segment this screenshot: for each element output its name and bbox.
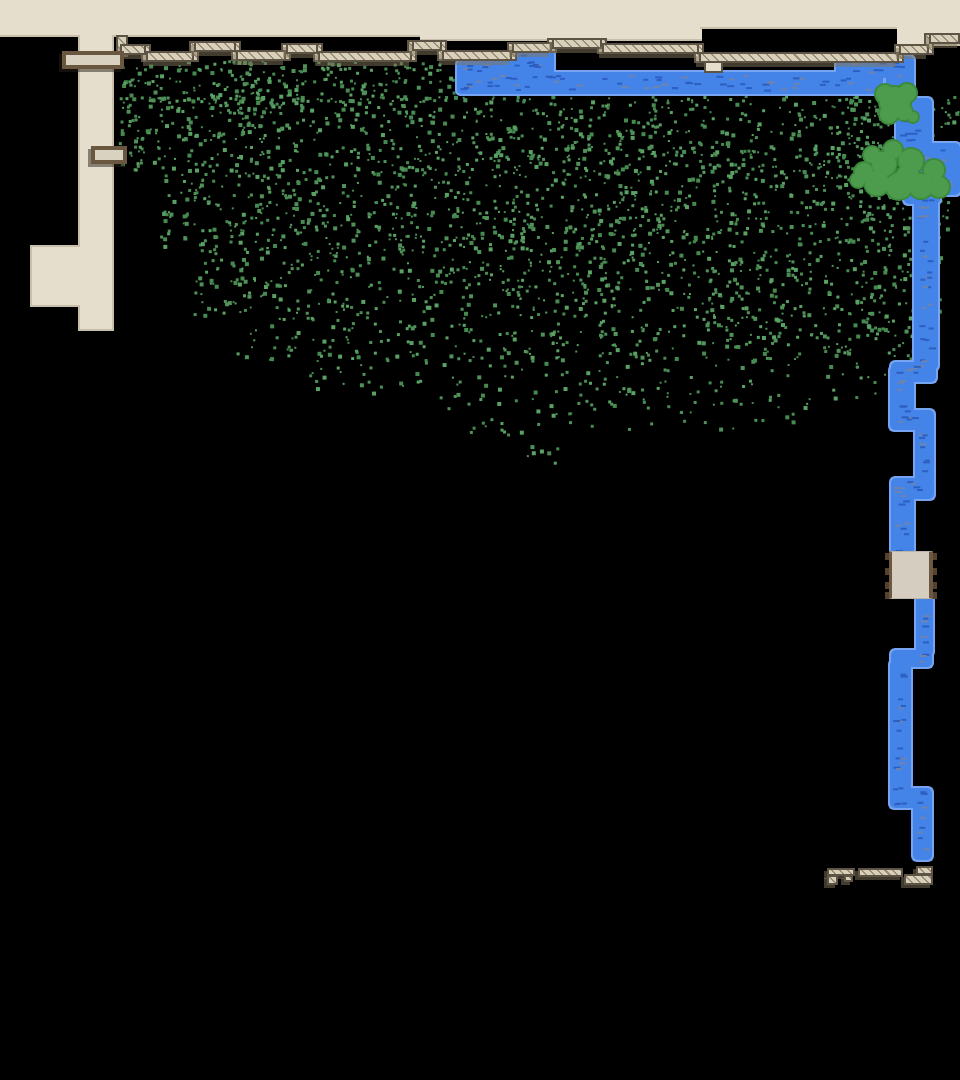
tree-canopy-layer[interactable] [0, 0, 960, 1080]
tree-canopy [865, 171, 889, 195]
tree-canopy [929, 177, 949, 197]
tree-canopy [876, 85, 894, 103]
tree-canopy [898, 84, 916, 102]
tree-canopy [880, 105, 898, 123]
map-viewport[interactable] [0, 0, 960, 1080]
tree-canopy [908, 112, 918, 122]
tree-canopy [851, 173, 865, 187]
tree-canopy [897, 165, 919, 187]
